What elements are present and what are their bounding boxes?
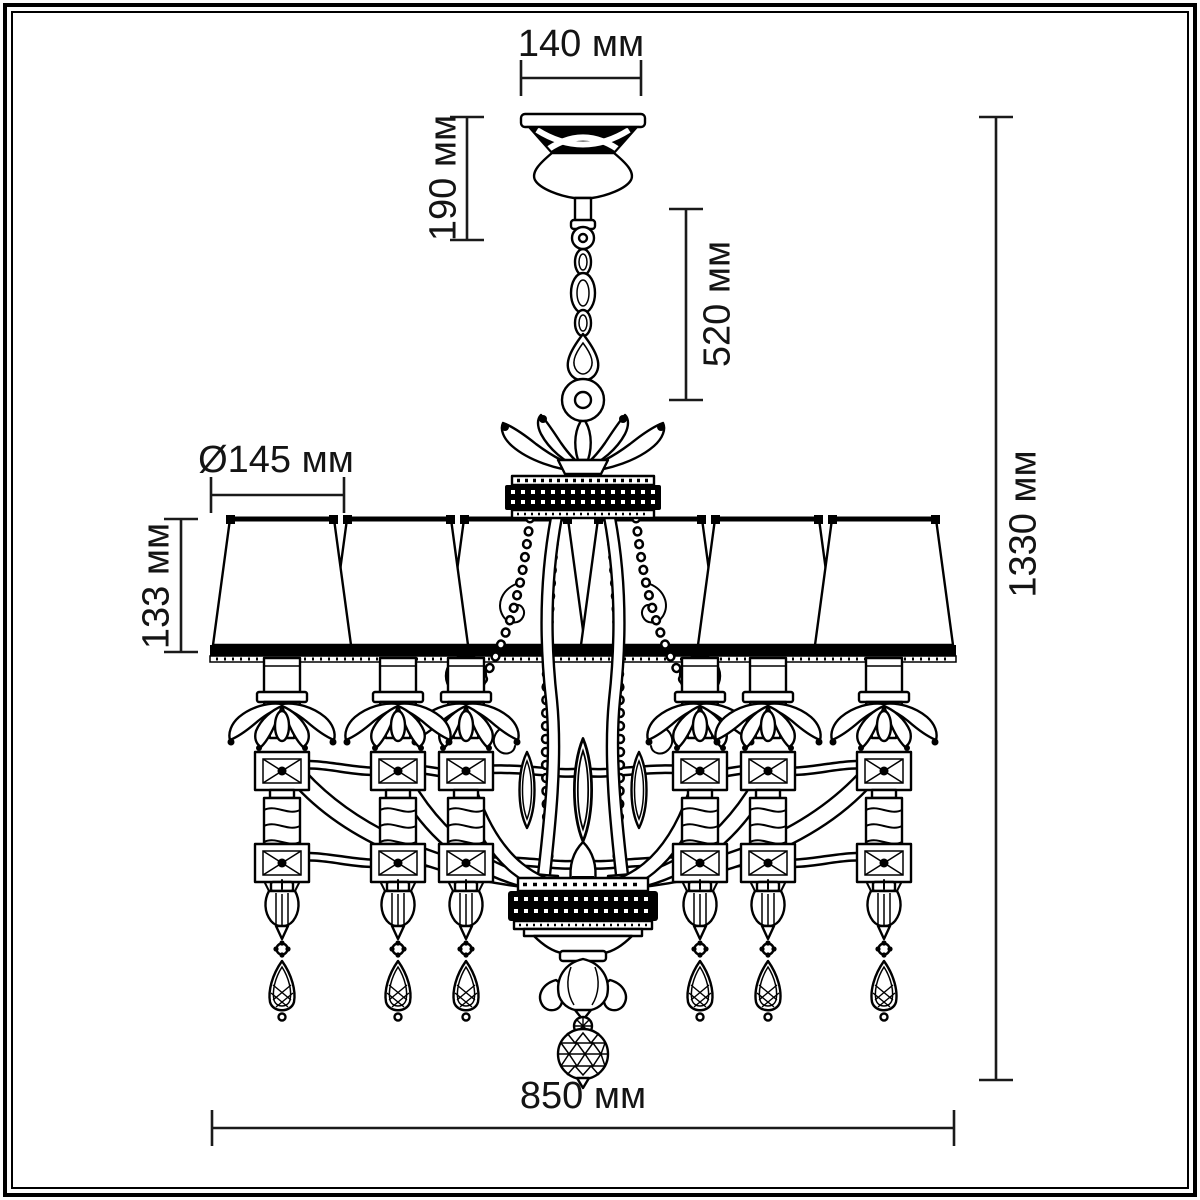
arm-column-outer-left	[228, 658, 337, 1021]
bottom-assembly	[508, 842, 658, 1088]
marquise-crystal-left	[520, 752, 535, 828]
lampshade-outer-right	[815, 515, 953, 645]
dimension-overall-height: 1330 мм	[979, 117, 1044, 1080]
dimension-overall-width: 850 мм	[212, 1075, 954, 1146]
label-shade-height: 133 мм	[135, 523, 177, 649]
lampshade-outer-left	[213, 515, 351, 645]
label-overall-width: 850 мм	[520, 1075, 646, 1117]
dimension-chain-drop: 520 мм	[669, 209, 738, 400]
label-overall-height: 1330 мм	[1002, 450, 1044, 597]
label-chain-drop: 520 мм	[696, 241, 738, 367]
shade-bottom-band	[210, 645, 956, 662]
drawing-sheet: 140 мм 190 мм 520 мм Ø145 мм 133 мм	[0, 0, 1200, 1200]
label-canopy-height: 190 мм	[422, 115, 464, 241]
arm-column-outer-right	[830, 658, 939, 1021]
dimension-canopy-height: 190 мм	[422, 115, 484, 241]
ceiling-canopy	[521, 114, 645, 249]
leaf-crown	[501, 415, 665, 474]
label-shade-diameter: Ø145 мм	[198, 439, 354, 481]
dimension-canopy-width: 140 мм	[518, 23, 644, 96]
dimension-shade-diameter: Ø145 мм	[198, 439, 354, 513]
lampshade-mid-right	[698, 515, 836, 645]
hanging-chain	[562, 222, 604, 421]
bottom-gallery-ring	[508, 891, 658, 921]
top-gallery-ring	[505, 476, 661, 518]
lampshade-row	[210, 515, 956, 662]
label-canopy-width: 140 мм	[518, 23, 644, 65]
chandelier-diagram: 140 мм 190 мм 520 мм Ø145 мм 133 мм	[0, 0, 1200, 1200]
lampshade-mid-left	[330, 515, 468, 645]
canopy-stem	[575, 198, 591, 222]
dimension-shade-height: 133 мм	[135, 519, 198, 652]
marquise-crystal-right	[632, 752, 647, 828]
tulip-finial	[540, 959, 626, 1020]
